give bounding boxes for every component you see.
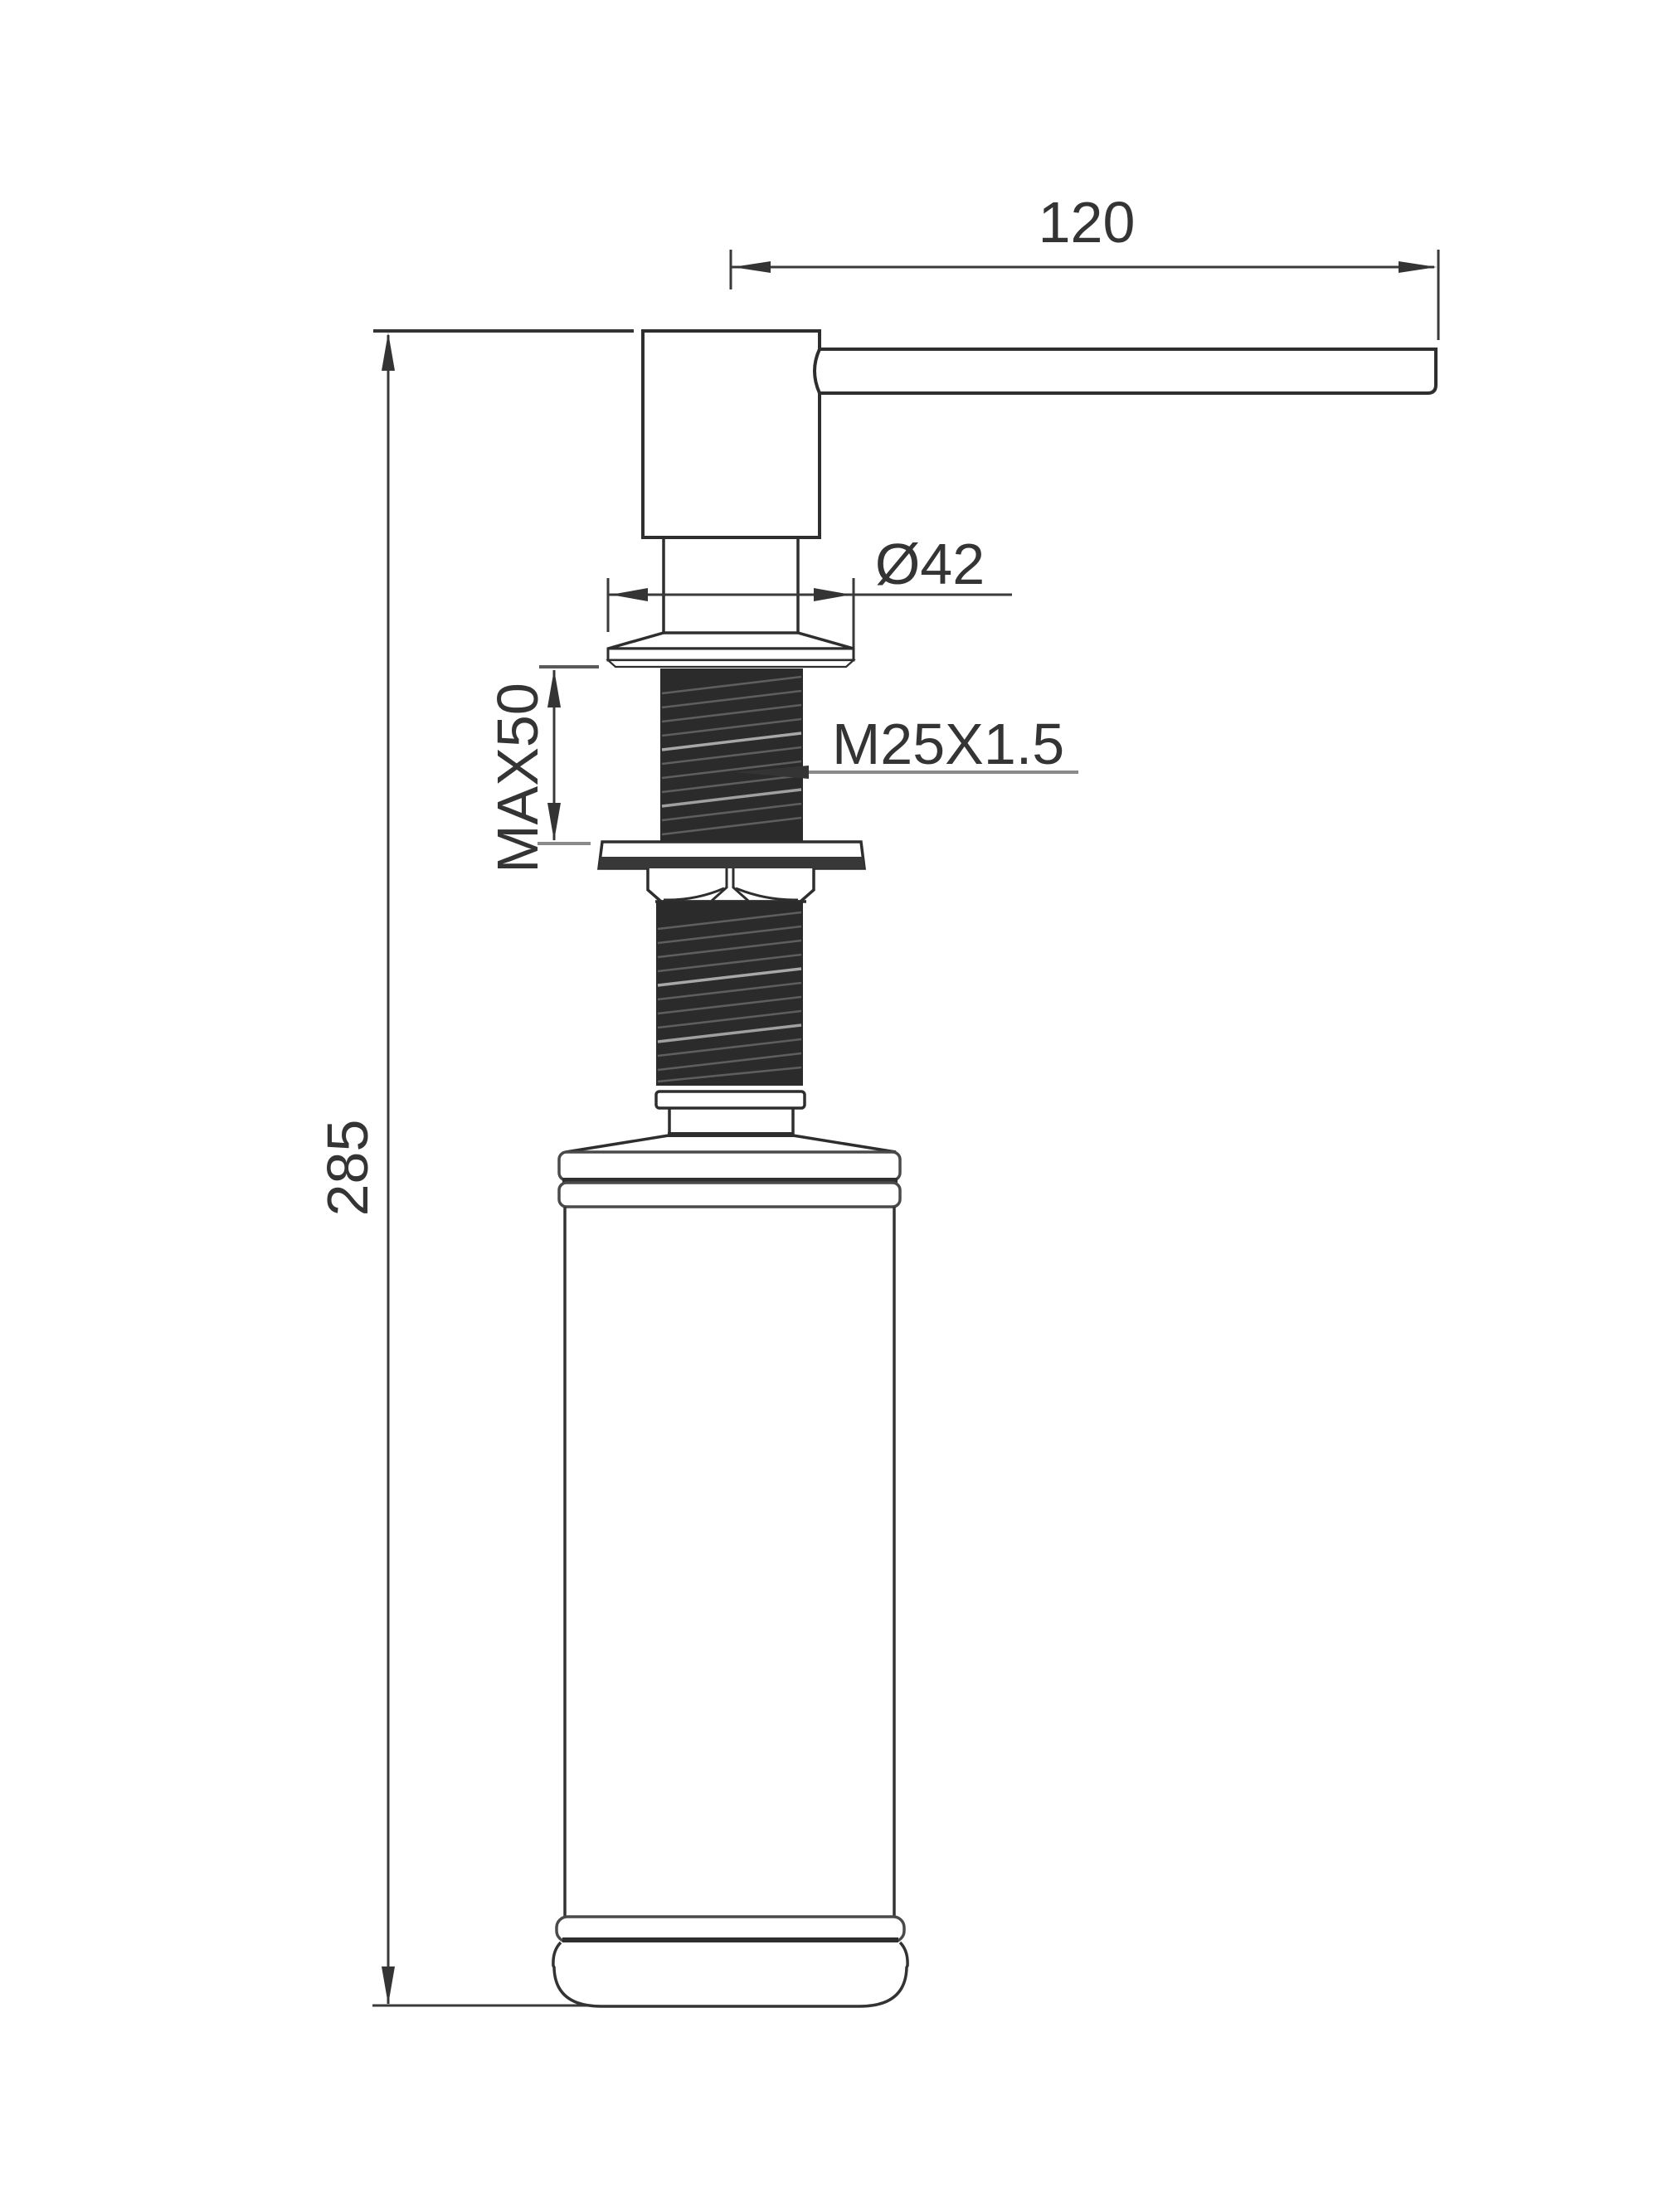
svg-text:MAX50: MAX50: [485, 683, 550, 873]
svg-text:Ø42: Ø42: [875, 532, 985, 596]
svg-text:120: 120: [1039, 190, 1136, 255]
svg-text:285: 285: [315, 1120, 380, 1217]
svg-text:M25X1.5: M25X1.5: [832, 712, 1064, 776]
